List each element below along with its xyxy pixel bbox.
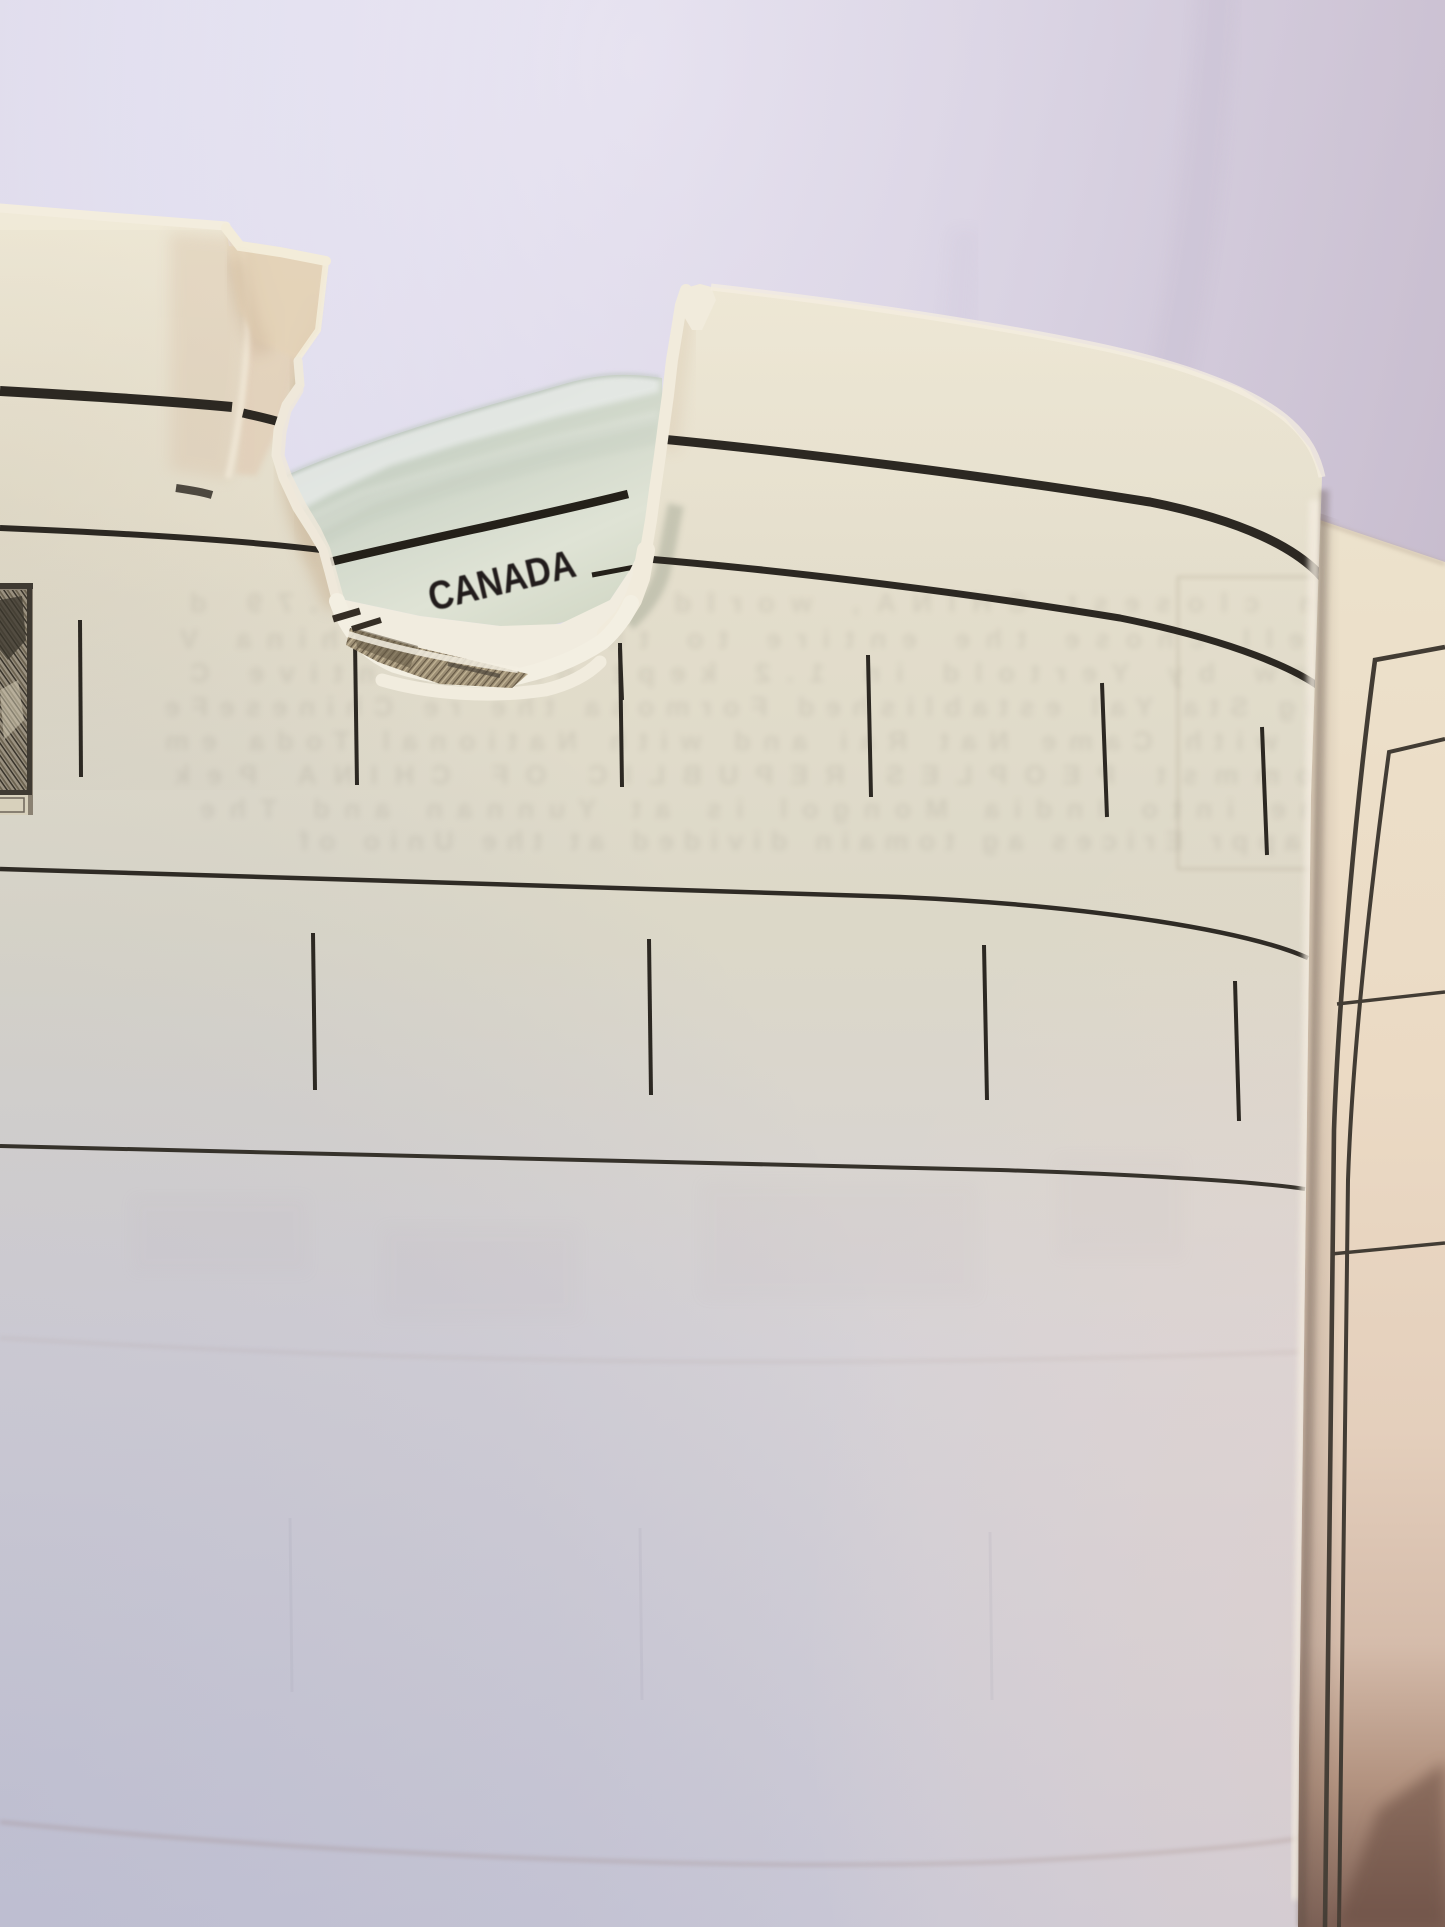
- svg-text:appr Erices ag tomain divided: appr Erices ag tomain divided at the Uni…: [299, 826, 1300, 856]
